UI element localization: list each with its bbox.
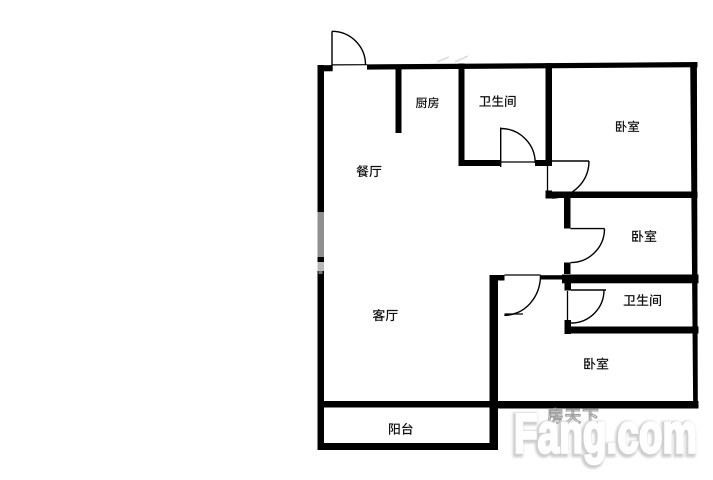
svg-text:Fang.com: Fang.com bbox=[514, 402, 697, 465]
